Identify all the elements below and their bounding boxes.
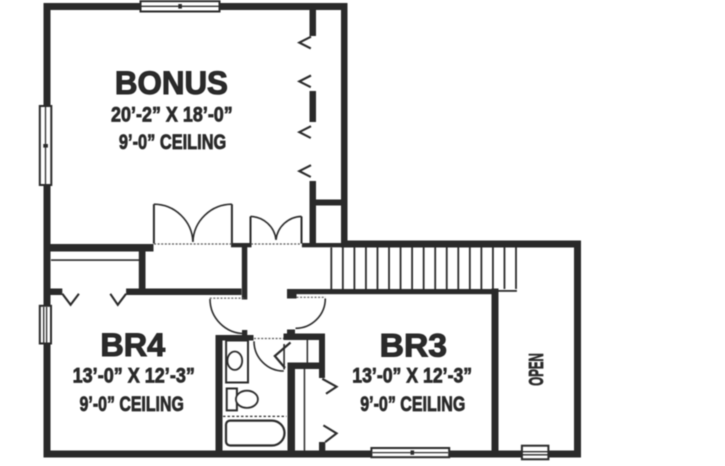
svg-text:13’-0” X 12’-3”: 13’-0” X 12’-3” [73,364,195,388]
svg-text:BR4: BR4 [100,327,165,363]
svg-text:BR3: BR3 [380,328,447,364]
svg-text:13’-0” X 12’-3”: 13’-0” X 12’-3” [352,364,472,388]
svg-text:9’-0” CEILING: 9’-0” CEILING [119,131,226,155]
svg-text:9’-0” CEILING: 9’-0” CEILING [360,393,465,417]
svg-text:20’-2” X 18’-0”: 20’-2” X 18’-0” [111,103,233,127]
svg-text:BONUS: BONUS [115,65,228,102]
svg-text:OPEN: OPEN [524,353,548,385]
svg-text:9’-0” CEILING: 9’-0” CEILING [80,393,184,417]
